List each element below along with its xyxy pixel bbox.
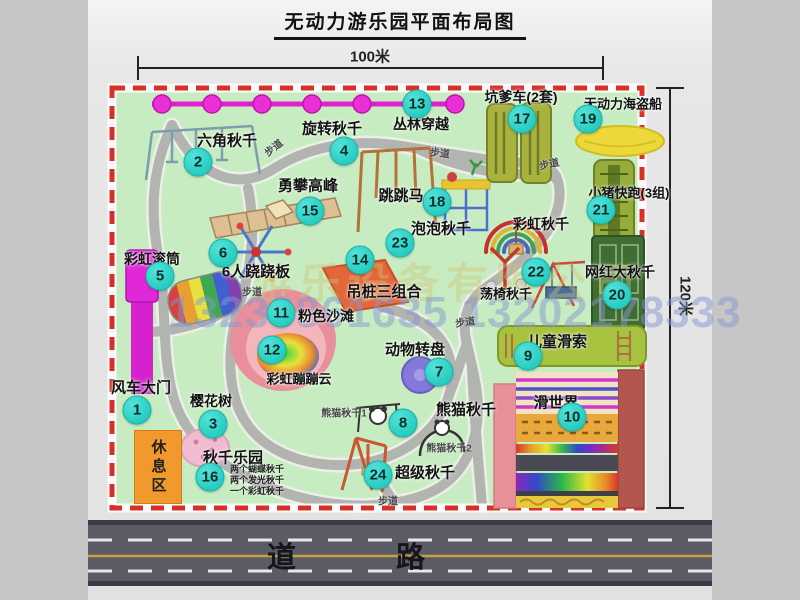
attraction-label-2: 六角秋千	[197, 130, 257, 151]
marker-11: 11	[267, 299, 296, 328]
marker-20: 20	[603, 281, 632, 310]
marker-4: 4	[330, 137, 359, 166]
marker-6: 6	[209, 239, 238, 268]
attraction-label-4: 旋转秋千	[302, 118, 362, 139]
attraction-label-22: 荡椅秋千	[480, 284, 532, 303]
width-dimension-label: 100米	[350, 46, 390, 67]
attraction-label-14: 吊桩三组合	[346, 281, 421, 302]
swing-park-details: 两个蝴蝶秋千两个发光秋千一个彩虹秋千	[230, 464, 284, 497]
attraction-label-23: 泡泡秋千	[411, 218, 471, 239]
attraction-label-8: 熊猫秋千	[436, 399, 496, 420]
attraction-label-11: 粉色沙滩	[298, 306, 354, 326]
marker-21: 21	[587, 196, 616, 225]
attraction-label-24: 超级秋千	[395, 462, 455, 483]
marker-3: 3	[199, 410, 228, 439]
marker-1: 1	[123, 396, 152, 425]
marker-23: 23	[386, 229, 415, 258]
panda-swing-2-label: 熊猫秋千2	[426, 440, 472, 455]
marker-24: 24	[364, 461, 393, 490]
swing-park-detail-line: 两个发光秋千	[230, 475, 284, 486]
marker-15: 15	[296, 197, 325, 226]
swing-park-detail-line: 一个彩虹秋千	[230, 486, 284, 497]
attraction-label-18: 跳跳马	[378, 185, 423, 206]
footpath-label: 步道	[378, 493, 398, 508]
marker-22: 22	[522, 258, 551, 287]
marker-17: 17	[508, 105, 537, 134]
attraction-label-3: 樱花树	[190, 391, 232, 411]
marker-7: 7	[425, 358, 454, 387]
marker-12: 12	[258, 336, 287, 365]
attraction-label-7: 动物转盘	[385, 339, 445, 360]
panda-swing-1-label: 熊猫秋千1	[321, 405, 367, 420]
marker-10: 10	[558, 403, 587, 432]
marker-18: 18	[423, 188, 452, 217]
height-dimension-label: 120米	[676, 276, 697, 316]
marker-2: 2	[184, 148, 213, 177]
footpath-label: 步道	[242, 284, 262, 299]
marker-16: 16	[196, 463, 225, 492]
rest-area: 休息区	[134, 430, 182, 504]
attraction-label-1: 风车大门	[111, 377, 171, 398]
footpath-label: 步道	[454, 312, 476, 330]
page-title: 无动力游乐园平面布局图	[0, 7, 800, 40]
marker-19: 19	[574, 105, 603, 134]
attraction-label-20: 网红大秋千	[585, 262, 655, 282]
footpath-label: 步道	[429, 143, 450, 160]
marker-9: 9	[514, 342, 543, 371]
marker-8: 8	[389, 409, 418, 438]
marker-13: 13	[403, 90, 432, 119]
road-label: 道 路	[221, 534, 471, 576]
attraction-label-15: 勇攀高峰	[278, 175, 338, 196]
marker-14: 14	[346, 246, 375, 275]
marker-5: 5	[146, 262, 175, 291]
attraction-label-12: 彩虹蹦蹦云	[266, 369, 331, 388]
rainbow-swing-label: 彩虹秋千	[513, 214, 569, 234]
